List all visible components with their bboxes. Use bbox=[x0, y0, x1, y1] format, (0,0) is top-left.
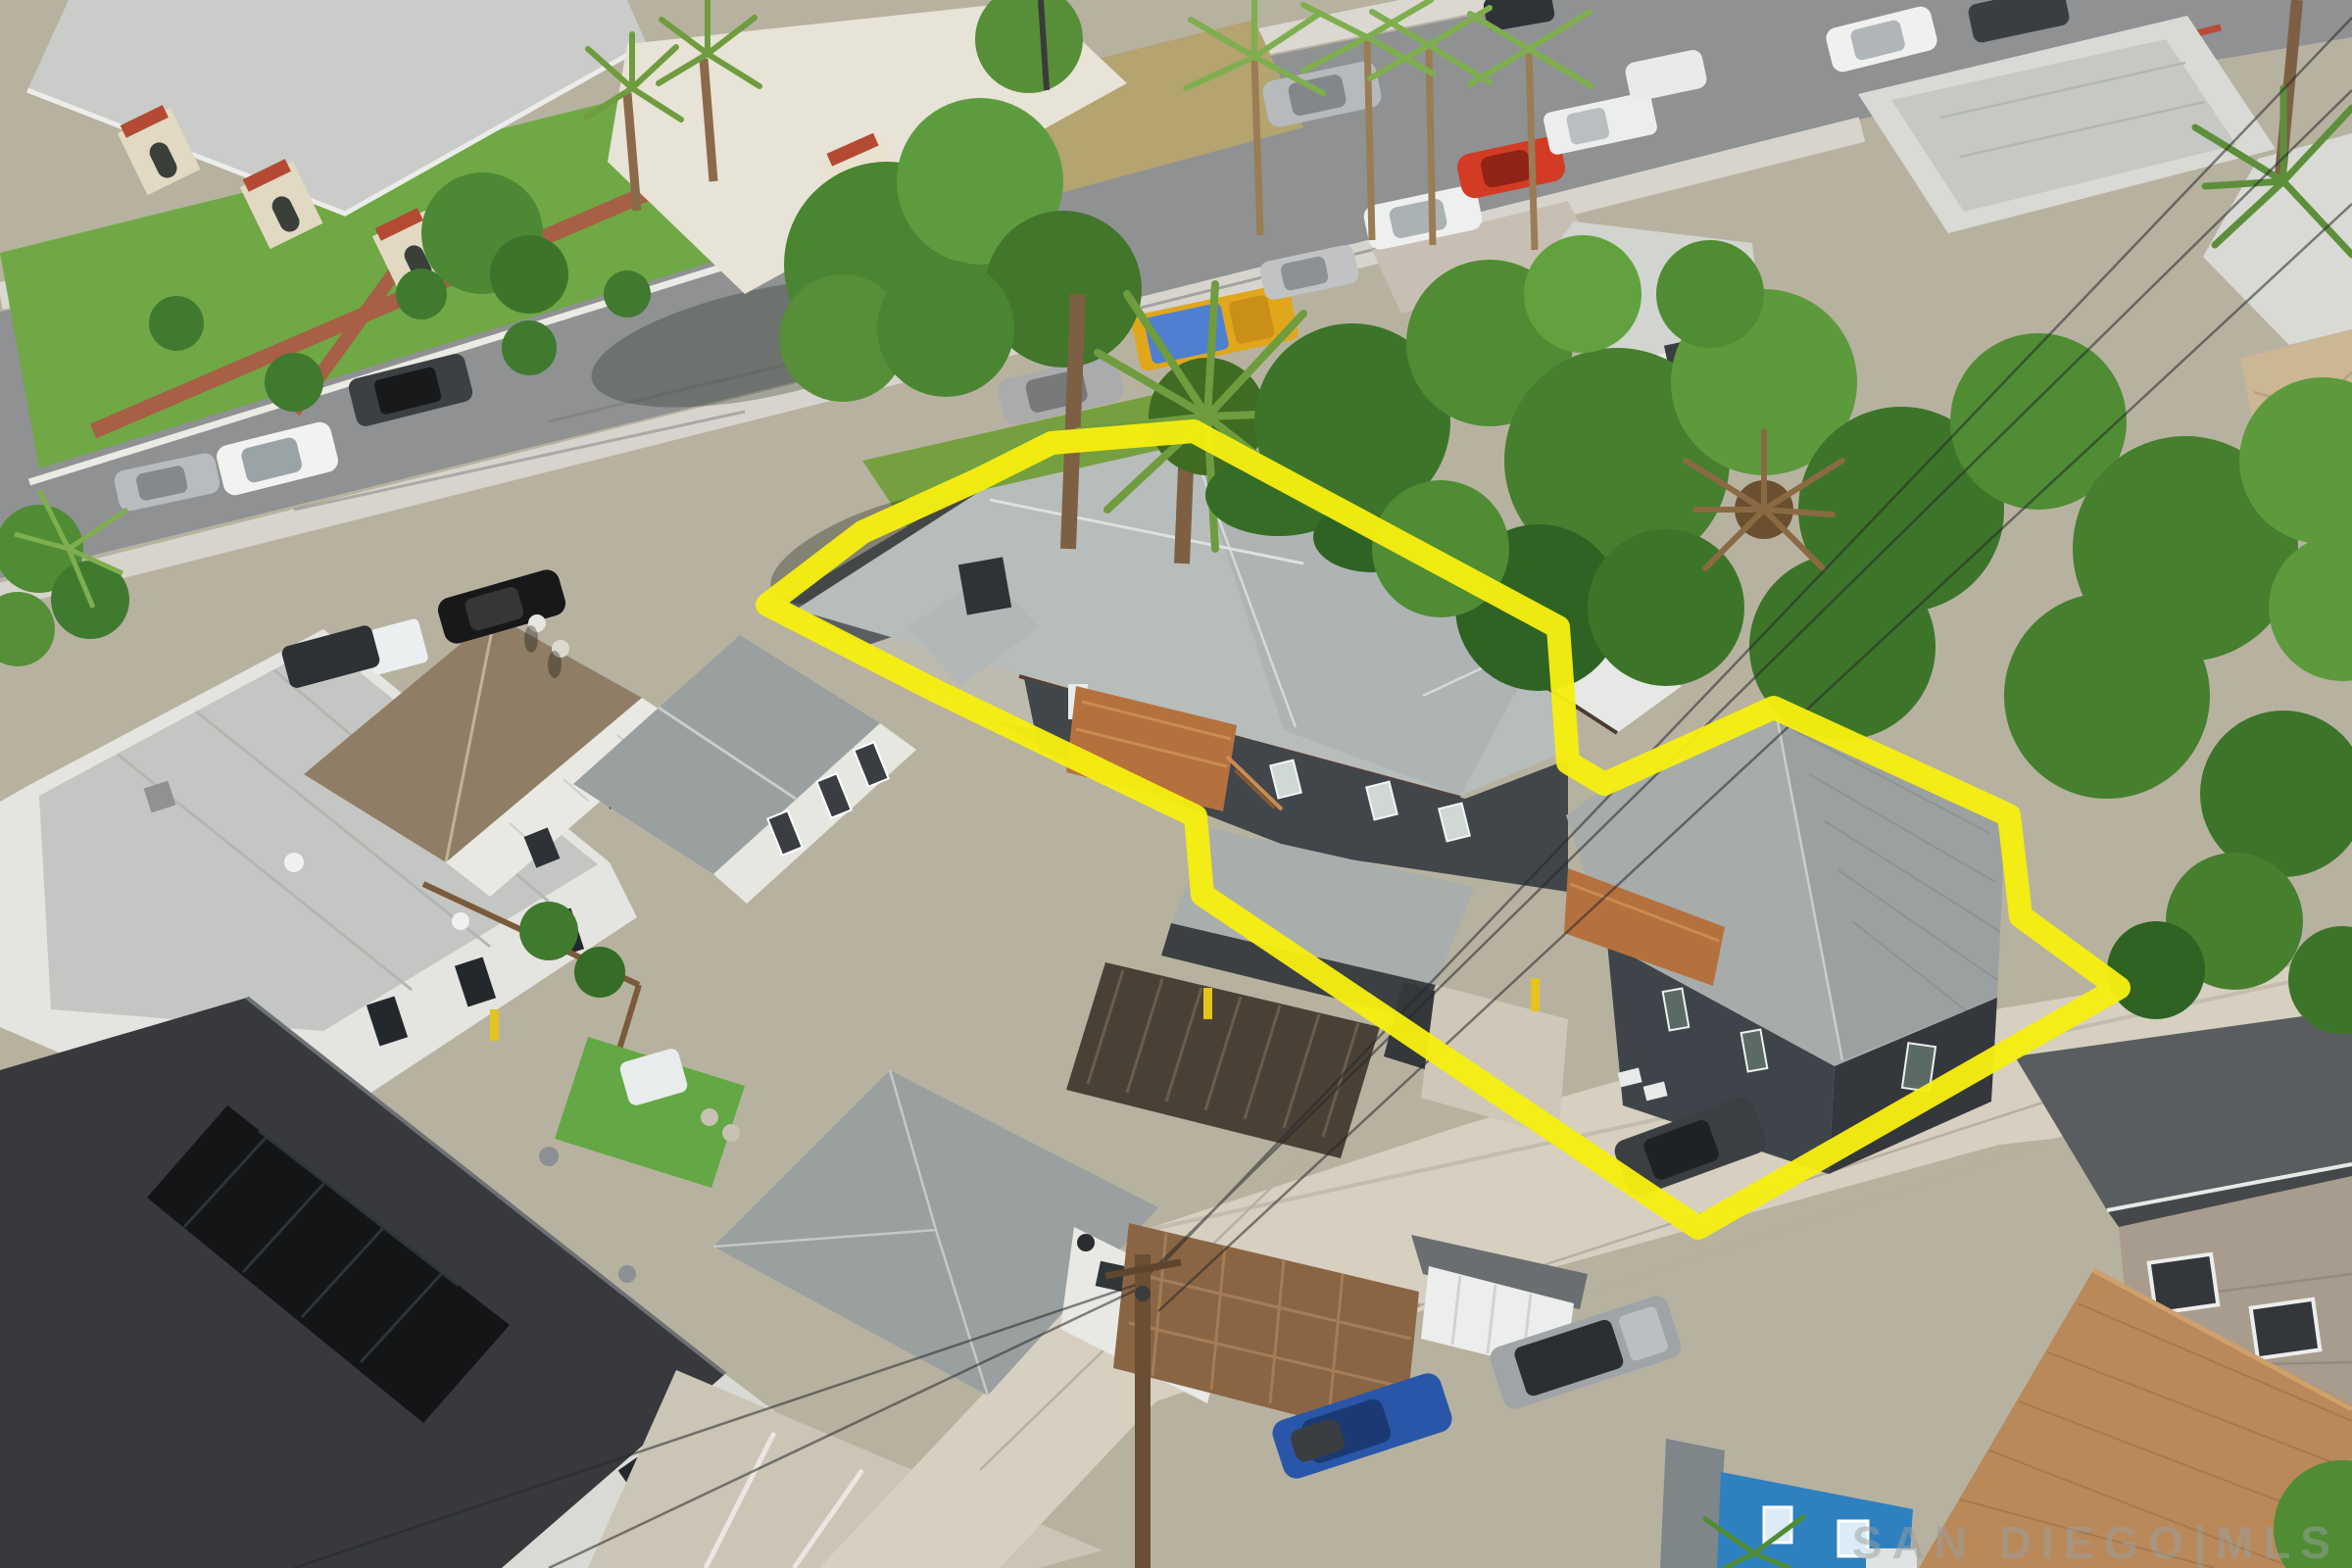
grey-fence bbox=[1660, 1439, 1725, 1568]
aerial-photo: SAN DIEGO|MLS bbox=[0, 0, 2352, 1568]
chimney bbox=[958, 557, 1011, 614]
mls-watermark: SAN DIEGO|MLS bbox=[1852, 1517, 2340, 1568]
satellite-dish bbox=[1077, 1234, 1095, 1251]
aerial-photo-canvas: SAN DIEGO|MLS bbox=[0, 0, 2352, 1568]
transformer bbox=[1135, 1286, 1151, 1301]
